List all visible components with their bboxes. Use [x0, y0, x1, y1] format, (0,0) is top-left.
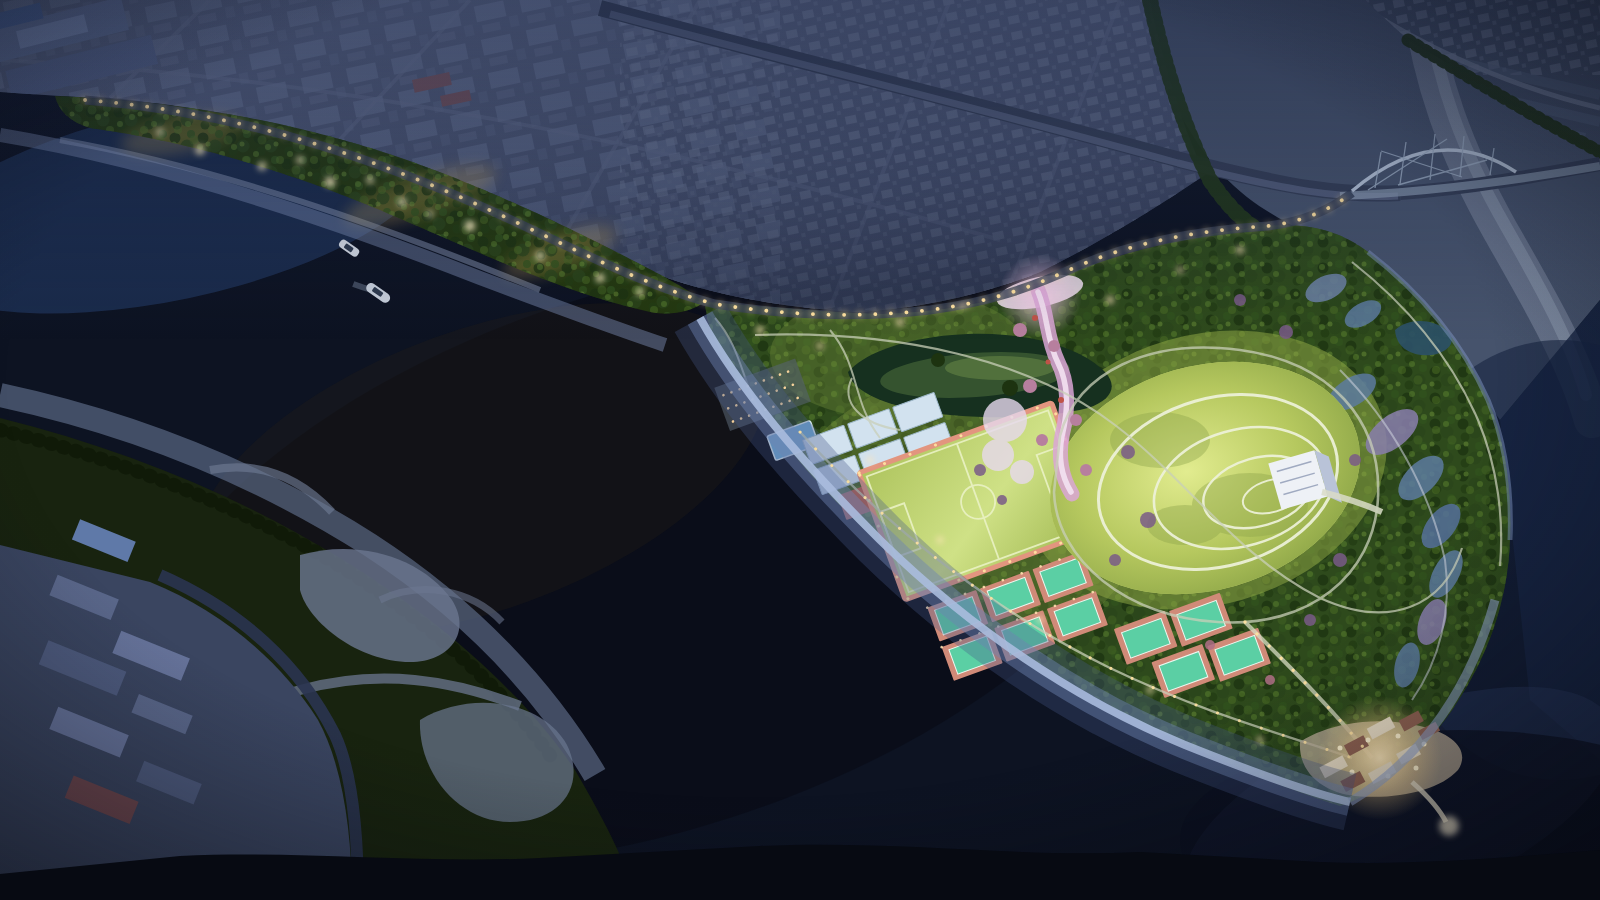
aerial-scene: [0, 0, 1600, 900]
render-canvas: [0, 0, 1600, 900]
vignette: [0, 0, 1600, 900]
color-grade: [0, 0, 1600, 900]
